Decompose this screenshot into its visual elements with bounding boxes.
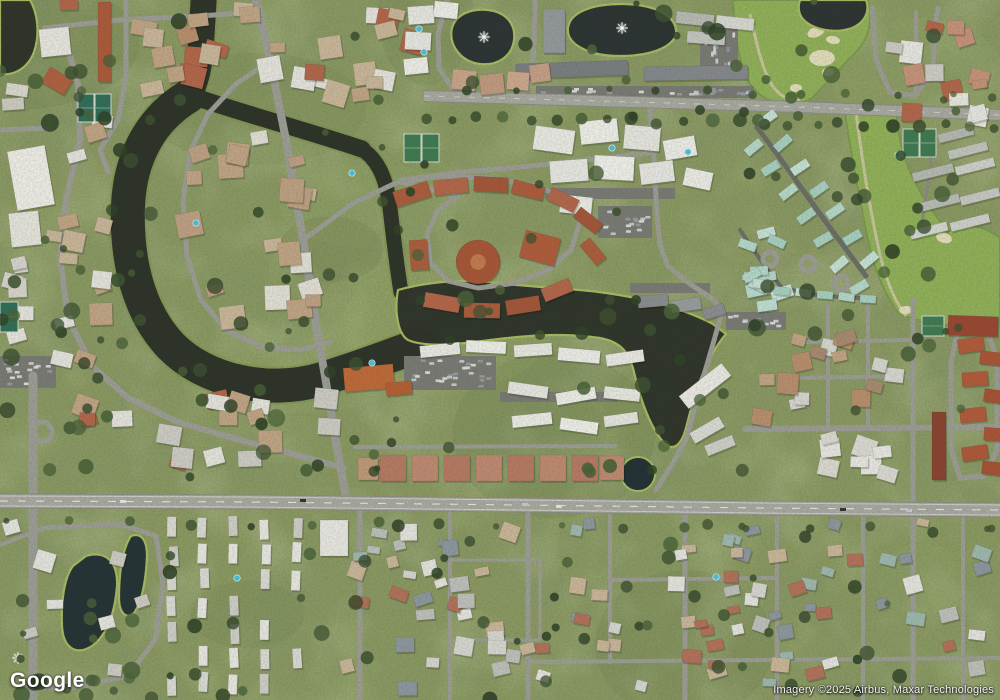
fountain-icon (616, 22, 628, 34)
google-logo[interactable]: Google (10, 669, 85, 693)
map-viewport[interactable]: Google Imagery ©2025 Airbus, Maxar Techn… (0, 0, 1000, 700)
fountain-icon (478, 31, 490, 43)
satellite-imagery[interactable] (0, 0, 1000, 700)
imagery-attribution: Imagery ©2025 Airbus, Maxar Technologies (773, 684, 994, 696)
